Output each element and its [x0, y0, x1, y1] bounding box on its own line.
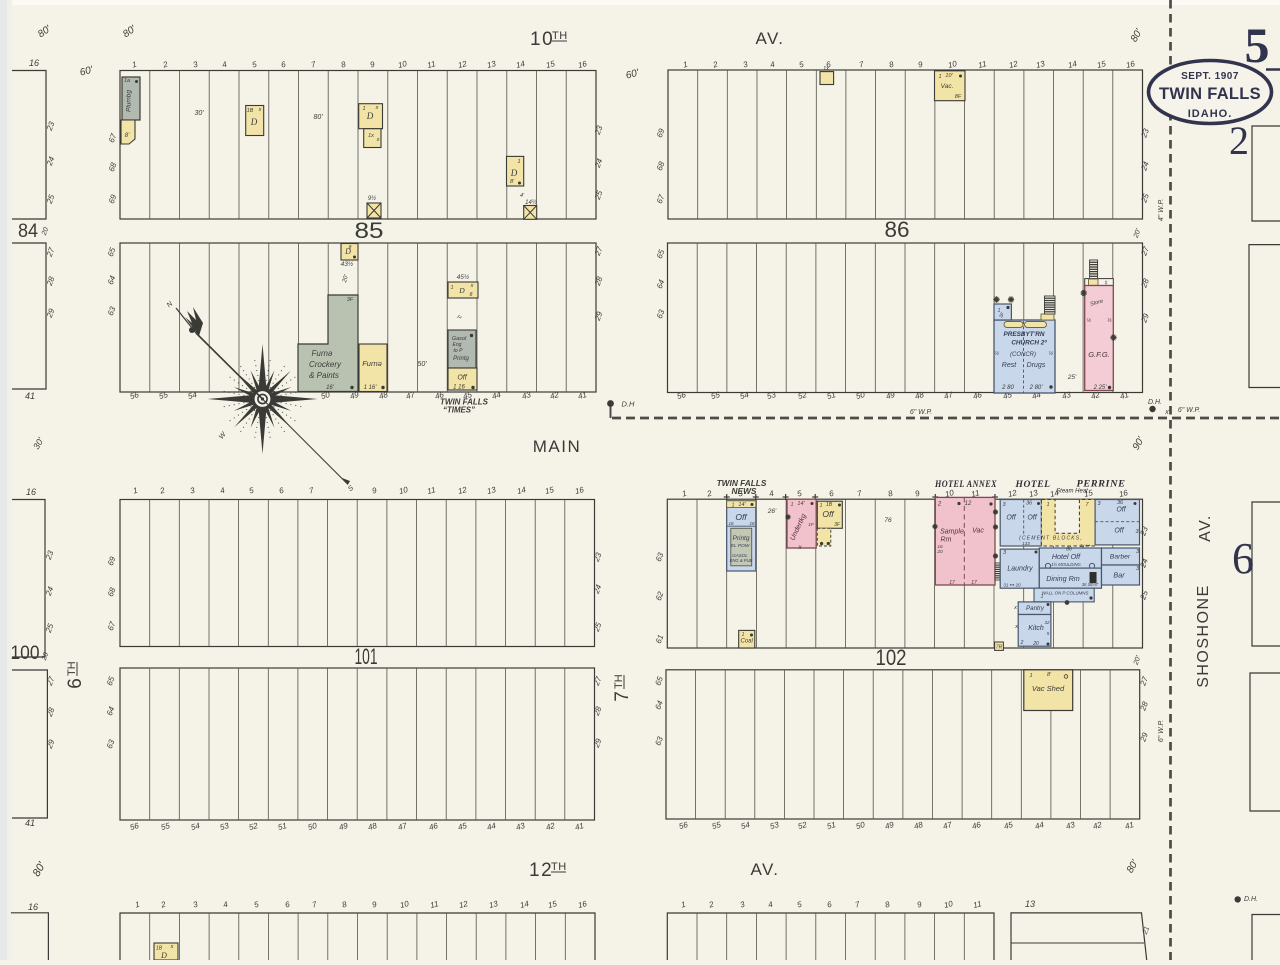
svg-text:76: 76 [884, 517, 892, 524]
svg-text:Off: Off [457, 375, 467, 382]
svg-text:CHURCH 2º: CHURCH 2º [1011, 340, 1047, 347]
svg-text:17: 17 [949, 580, 955, 586]
svg-text:Pantry: Pantry [1026, 605, 1045, 612]
svg-text:to P: to P [454, 348, 464, 354]
svg-text:16': 16' [326, 385, 335, 391]
svg-text:PERRINE: PERRINE [1077, 479, 1126, 489]
svg-text:Off: Off [1027, 515, 1037, 522]
svg-text:Sample: Sample [940, 529, 964, 536]
svg-text:8: 8 [470, 292, 473, 298]
svg-text:1: 1 [517, 159, 520, 165]
svg-text:7: 7 [612, 690, 633, 702]
svg-text:7R: 7R [996, 645, 1003, 651]
svg-text:NEWS: NEWS [732, 486, 757, 496]
svg-text:x: x [1164, 409, 1169, 416]
svg-text:2 80: 2 80 [1001, 385, 1014, 391]
svg-text:3F: 3F [347, 297, 354, 303]
svg-text:36: 36 [1026, 501, 1033, 507]
svg-text:102: 102 [876, 645, 907, 670]
svg-text:Printg: Printg [453, 356, 469, 362]
svg-text:101: 101 [355, 644, 378, 669]
svg-text:1: 1 [732, 502, 735, 508]
svg-text:36: 36 [1117, 500, 1124, 506]
svg-text:13: 13 [1025, 899, 1035, 909]
svg-text:AV.: AV. [750, 860, 779, 879]
svg-text:Off: Off [822, 509, 835, 519]
svg-text:x: x [1014, 624, 1018, 630]
svg-text:Off: Off [1116, 507, 1126, 514]
svg-text:ENG & PUB: ENG & PUB [730, 558, 753, 563]
svg-text:x: x [375, 105, 379, 111]
svg-text:Drugs: Drugs [1027, 362, 1046, 369]
svg-text:43½: 43½ [341, 260, 354, 268]
svg-text:16: 16 [29, 58, 39, 68]
svg-text:32: 32 [1044, 620, 1050, 625]
svg-text:(CONCR): (CONCR) [1010, 352, 1036, 358]
svg-text:G.F.G.: G.F.G. [1088, 350, 1110, 359]
svg-text:45½: 45½ [457, 273, 470, 281]
svg-text:1B: 1B [247, 108, 254, 114]
svg-text:Rest: Rest [1002, 362, 1017, 369]
svg-text:80': 80' [313, 114, 323, 121]
svg-text:1: 1 [1029, 673, 1032, 679]
svg-text:D: D [160, 951, 167, 960]
svg-text:84: 84 [18, 221, 38, 242]
svg-text:4" W.P.: 4" W.P. [1158, 199, 1165, 221]
svg-text:TH: TH [66, 661, 78, 676]
svg-text:100: 100 [11, 643, 40, 664]
svg-text:2: 2 [1229, 118, 1249, 163]
svg-text:WALL ON P COLUMNS: WALL ON P COLUMNS [1042, 591, 1089, 596]
svg-text:SEPT. 1907: SEPT. 1907 [1181, 71, 1239, 82]
svg-text:1a: 1a [124, 78, 130, 84]
svg-text:6" W.P.: 6" W.P. [1178, 407, 1200, 414]
svg-text:41: 41 [25, 391, 35, 401]
svg-text:Off: Off [1114, 528, 1124, 535]
svg-text:D.H.: D.H. [1148, 399, 1162, 406]
svg-text:1: 1 [938, 74, 941, 80]
svg-text:Steam Heat: Steam Heat [1056, 489, 1088, 495]
svg-text:Furnə: Furnə [312, 349, 333, 358]
svg-text:Dining Rm: Dining Rm [1046, 574, 1080, 583]
svg-text:x: x [258, 107, 262, 113]
svg-text:x: x [170, 944, 174, 950]
svg-text:HOTEL ANNEX: HOTEL ANNEX [934, 479, 997, 489]
svg-text:MAIN: MAIN [533, 437, 582, 456]
svg-text:Hotel Off: Hotel Off [1052, 552, 1081, 561]
svg-text:10: 10 [530, 29, 554, 50]
svg-text:6: 6 [1232, 534, 1254, 583]
svg-text:Vac: Vac [972, 528, 984, 535]
svg-text:1B: 1B [826, 502, 833, 508]
svg-text:Barber: Barber [1110, 554, 1131, 561]
svg-text:18: 18 [728, 521, 734, 526]
svg-text:9½: 9½ [368, 195, 376, 202]
svg-text:Off: Off [1006, 515, 1016, 522]
svg-text:D.H: D.H [622, 400, 636, 409]
svg-text:1½ MOULDING: 1½ MOULDING [1051, 562, 1081, 567]
svg-text:Coal: Coal [741, 639, 754, 645]
svg-text:Printg: Printg [733, 535, 750, 542]
svg-text:& Paints: & Paints [309, 371, 339, 380]
svg-text:1: 1 [451, 285, 454, 291]
svg-text:14': 14' [797, 501, 805, 507]
svg-text:Plumbg: Plumbg [126, 90, 133, 112]
svg-text:AV.: AV. [1197, 514, 1214, 542]
svg-text:1: 1 [742, 632, 745, 638]
svg-text:Vac Shed: Vac Shed [1032, 684, 1065, 693]
svg-text:Vac.: Vac. [941, 83, 954, 90]
svg-text:Off: Off [735, 512, 748, 522]
svg-text:Rm: Rm [941, 537, 952, 544]
svg-text:20: 20 [1032, 641, 1039, 647]
svg-text:26': 26' [767, 508, 777, 515]
svg-text:133: 133 [1022, 541, 1030, 546]
svg-text:D: D [366, 111, 374, 121]
svg-text:“TIMES”: “TIMES” [443, 405, 476, 415]
svg-text:Kitch: Kitch [1028, 625, 1044, 632]
svg-text:D: D [458, 286, 465, 295]
svg-text:HOTEL: HOTEL [1014, 479, 1050, 489]
svg-text:(CEMENT BLOCKS,: (CEMENT BLOCKS, [1019, 536, 1083, 542]
svg-text:IDAHO.: IDAHO. [1188, 108, 1233, 120]
svg-text:2 25': 2 25' [1093, 385, 1108, 391]
svg-text:20: 20 [936, 549, 943, 555]
svg-text:14': 14' [738, 502, 746, 508]
svg-text:D: D [250, 117, 258, 127]
svg-text:12: 12 [529, 860, 553, 881]
svg-text:86: 86 [885, 217, 910, 242]
svg-text:AV.: AV. [755, 29, 784, 48]
svg-text:1: 1 [1046, 502, 1049, 508]
svg-text:1: 1 [791, 502, 794, 508]
svg-text:25': 25' [1067, 374, 1077, 381]
svg-text:6" W.P.: 6" W.P. [910, 409, 932, 416]
svg-text:1 16': 1 16' [364, 385, 378, 391]
svg-text:85: 85 [355, 218, 384, 243]
svg-text:1x: 1x [368, 133, 374, 139]
svg-text:10': 10' [945, 73, 953, 79]
svg-text:31 ••• 20: 31 ••• 20 [1003, 583, 1021, 588]
svg-text:17: 17 [971, 580, 977, 586]
svg-text:x: x [470, 283, 474, 289]
svg-text:2 80': 2 80' [1029, 385, 1044, 391]
svg-text:TH: TH [613, 674, 625, 689]
svg-text:6" W.P.: 6" W.P. [1158, 720, 1165, 742]
svg-text:Bar: Bar [1113, 571, 1125, 580]
svg-text:1: 1 [362, 106, 365, 112]
svg-text:36 SEAT: 36 SEAT [1082, 582, 1099, 587]
svg-text:D: D [510, 168, 518, 178]
svg-text:30': 30' [194, 110, 204, 117]
svg-text:18: 18 [749, 521, 755, 526]
svg-text:16: 16 [28, 902, 38, 912]
svg-text:TH: TH [551, 861, 567, 873]
svg-text:x: x [376, 137, 380, 143]
svg-text:16: 16 [26, 487, 36, 497]
svg-text:1 16: 1 16 [453, 385, 465, 391]
svg-text:6: 6 [65, 677, 86, 689]
svg-text:1x •••: 1x ••• [1080, 543, 1091, 548]
svg-text:PRESBYT'RN: PRESBYT'RN [1004, 331, 1045, 338]
svg-text:5: 5 [1245, 17, 1270, 73]
svg-text:8F: 8F [955, 94, 962, 100]
svg-text:x: x [1013, 605, 1017, 611]
svg-text:SHOSHONE: SHOSHONE [1195, 584, 1212, 688]
svg-text:Laundry: Laundry [1007, 566, 1033, 573]
svg-text:TH: TH [552, 30, 568, 42]
svg-text:TWIN FALLS: TWIN FALLS [1159, 85, 1261, 103]
svg-text:3F: 3F [834, 522, 841, 528]
svg-text:2: 2 [1020, 640, 1024, 646]
svg-text:EL POW: EL POW [731, 543, 750, 549]
svg-text:50': 50' [417, 361, 427, 368]
svg-text:8: 8 [349, 245, 352, 251]
svg-text:41: 41 [25, 818, 35, 828]
svg-text:Crockery: Crockery [309, 360, 342, 369]
svg-text:D.H.: D.H. [1244, 896, 1258, 903]
svg-text:1: 1 [1041, 594, 1044, 600]
svg-text:12: 12 [965, 501, 972, 507]
svg-text:Furnə: Furnə [362, 359, 382, 368]
svg-text:1x: 1x [823, 66, 829, 72]
svg-text:2: 2 [937, 502, 942, 508]
